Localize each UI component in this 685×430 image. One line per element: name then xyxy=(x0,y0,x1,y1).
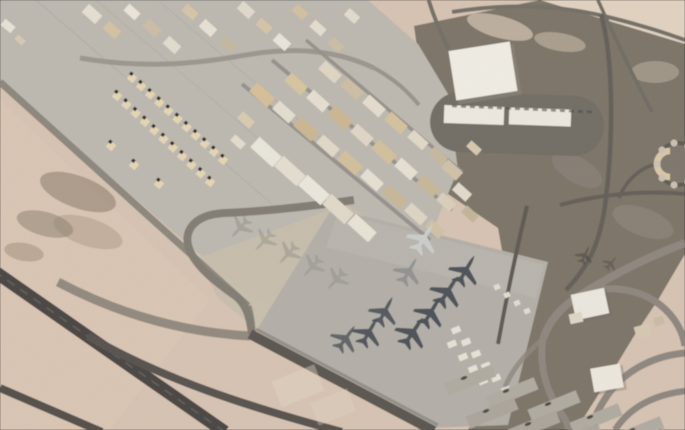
satellite-image-container xyxy=(0,0,685,430)
satellite-image xyxy=(0,0,685,430)
film-grain-overlay xyxy=(0,0,685,430)
